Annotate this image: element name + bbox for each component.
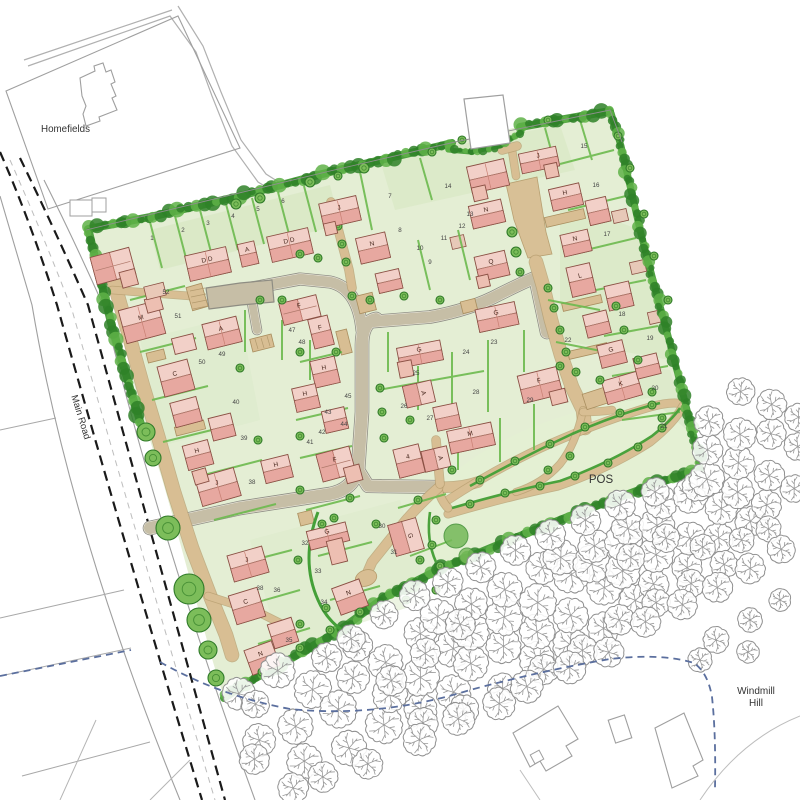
svg-text:36: 36 [274, 587, 281, 594]
svg-text:43: 43 [325, 409, 332, 416]
svg-text:18: 18 [619, 311, 626, 318]
svg-text:11: 11 [441, 235, 448, 242]
svg-text:10: 10 [417, 245, 424, 252]
svg-text:38: 38 [257, 585, 264, 592]
svg-text:21: 21 [661, 423, 668, 430]
svg-text:31: 31 [391, 549, 398, 556]
svg-text:29: 29 [527, 397, 534, 404]
svg-text:26: 26 [401, 403, 408, 410]
svg-text:9: 9 [428, 259, 432, 266]
svg-text:38: 38 [249, 479, 256, 486]
svg-text:39: 39 [241, 435, 248, 442]
svg-text:20: 20 [652, 385, 659, 392]
svg-text:42: 42 [319, 429, 326, 436]
svg-text:23: 23 [491, 339, 498, 346]
svg-text:19: 19 [647, 335, 654, 342]
svg-text:12: 12 [459, 223, 466, 230]
svg-text:49: 49 [219, 351, 226, 358]
svg-text:47: 47 [289, 327, 296, 334]
svg-text:8: 8 [398, 227, 402, 234]
svg-text:27: 27 [427, 415, 434, 422]
svg-text:4: 4 [231, 213, 235, 220]
svg-text:45: 45 [345, 393, 352, 400]
svg-text:Windmill: Windmill [737, 686, 775, 697]
svg-text:32: 32 [302, 540, 309, 547]
svg-text:34: 34 [321, 599, 328, 606]
svg-text:35: 35 [286, 637, 293, 644]
svg-text:2: 2 [181, 227, 185, 234]
svg-text:7: 7 [388, 193, 392, 200]
svg-text:28: 28 [473, 389, 480, 396]
svg-text:16: 16 [593, 182, 600, 189]
svg-text:Homefields: Homefields [41, 124, 90, 135]
svg-text:13: 13 [467, 211, 474, 218]
svg-text:48: 48 [299, 339, 306, 346]
svg-text:40: 40 [233, 399, 240, 406]
svg-text:5: 5 [256, 206, 260, 213]
svg-text:22: 22 [565, 337, 572, 344]
svg-text:15: 15 [581, 143, 588, 150]
svg-text:41: 41 [307, 439, 314, 446]
svg-text:25: 25 [413, 370, 420, 377]
svg-text:14: 14 [445, 183, 452, 190]
svg-text:24: 24 [463, 349, 470, 356]
svg-text:30: 30 [379, 523, 386, 530]
svg-text:50: 50 [199, 359, 206, 366]
svg-text:51: 51 [175, 313, 182, 320]
svg-text:POS: POS [589, 474, 614, 486]
svg-text:17: 17 [604, 231, 611, 238]
svg-text:52: 52 [163, 289, 170, 296]
svg-text:Hill: Hill [749, 698, 763, 709]
svg-text:3: 3 [206, 220, 210, 227]
svg-text:33: 33 [315, 568, 322, 575]
svg-text:1: 1 [150, 235, 154, 242]
svg-text:6: 6 [281, 198, 285, 205]
svg-text:44: 44 [341, 421, 348, 428]
